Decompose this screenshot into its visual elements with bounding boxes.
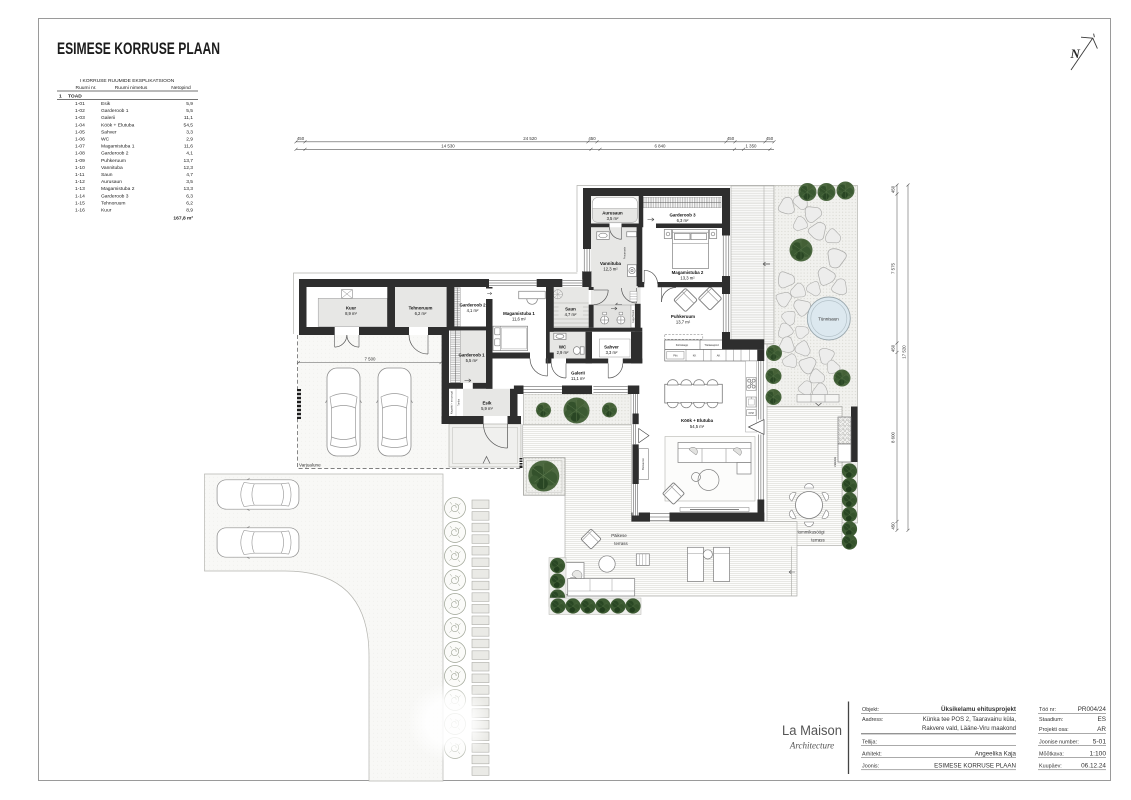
svg-text:La Maison: La Maison [782, 723, 842, 738]
svg-text:13,3: 13,3 [183, 186, 193, 192]
svg-text:24 520: 24 520 [523, 136, 537, 141]
svg-text:5,5 m²: 5,5 m² [466, 358, 478, 363]
svg-text:6,3 m²: 6,3 m² [677, 218, 689, 223]
svg-text:11,6 m²: 11,6 m² [512, 317, 526, 322]
svg-text:11,1 m²: 11,1 m² [571, 376, 585, 381]
svg-text:1-10: 1-10 [75, 165, 85, 171]
svg-text:450: 450 [891, 185, 896, 193]
svg-text:Saun: Saun [565, 307, 576, 312]
svg-text:Magamistuba 2: Magamistuba 2 [672, 270, 704, 275]
svg-text:Köök + Elutuba: Köök + Elutuba [101, 122, 135, 128]
svg-text:54,5 m²: 54,5 m² [690, 424, 705, 429]
svg-text:12,3 m²: 12,3 m² [603, 267, 618, 272]
svg-text:Sahver: Sahver [101, 129, 117, 135]
svg-text:Joonis:: Joonis: [862, 763, 879, 769]
svg-text:450: 450 [588, 136, 596, 141]
svg-text:1-16: 1-16 [75, 208, 85, 214]
svg-text:ESIMESE KORRUSE PLAAN: ESIMESE KORRUSE PLAAN [57, 40, 220, 58]
svg-text:Vannituba: Vannituba [101, 165, 123, 171]
svg-text:1-14: 1-14 [75, 193, 85, 199]
svg-text:1-12: 1-12 [75, 179, 85, 185]
svg-text:4,7: 4,7 [186, 172, 193, 178]
svg-text:3,5 m²: 3,5 m² [607, 216, 619, 221]
svg-text:4,1 m²: 4,1 m² [467, 308, 479, 313]
svg-text:KK: KK [693, 354, 697, 358]
svg-text:Netopind: Netopind [171, 85, 191, 91]
svg-text:Aurusaun: Aurusaun [101, 179, 122, 185]
svg-text:Üksikelamu ehitusprojekt: Üksikelamu ehitusprojekt [941, 706, 1016, 713]
svg-text:1:100: 1:100 [1089, 750, 1106, 757]
svg-text:Töötasapind: Töötasapind [704, 343, 719, 347]
svg-text:1-08: 1-08 [75, 151, 85, 157]
svg-text:1-03: 1-03 [75, 115, 85, 121]
svg-text:ES: ES [1097, 716, 1106, 723]
svg-text:450: 450 [727, 136, 735, 141]
svg-text:terrass: terrass [811, 538, 825, 543]
svg-text:terrass: terrass [614, 541, 628, 546]
svg-text:450: 450 [891, 344, 896, 352]
svg-text:WC: WC [101, 137, 110, 143]
svg-text:Varjualune: Varjualune [299, 463, 321, 468]
svg-text:14 530: 14 530 [441, 144, 455, 149]
svg-text:1-05: 1-05 [75, 129, 85, 135]
svg-text:Magamistuba 2: Magamistuba 2 [101, 186, 135, 192]
svg-text:Pesumasin: Pesumasin [624, 246, 627, 259]
svg-text:06.12.24: 06.12.24 [1081, 762, 1106, 769]
svg-text:Magamistuba 1: Magamistuba 1 [503, 311, 535, 316]
svg-text:Väliköök: Väliköök [833, 456, 837, 467]
svg-text:Architecture: Architecture [789, 741, 834, 751]
svg-text:13,7: 13,7 [183, 158, 193, 164]
svg-text:450: 450 [766, 136, 774, 141]
svg-text:Töö nr:: Töö nr: [1039, 707, 1056, 713]
svg-text:Rakvere vald, Lääne-Viru maako: Rakvere vald, Lääne-Viru maakond [922, 726, 1016, 732]
svg-text:Vannituba: Vannituba [600, 261, 622, 266]
svg-text:Kuupäev:: Kuupäev: [1039, 763, 1062, 769]
svg-text:Tellija:: Tellija: [862, 739, 877, 745]
svg-text:Angeelika Kaja: Angeelika Kaja [975, 750, 1017, 757]
svg-text:Pliit: Pliit [673, 354, 677, 358]
svg-text:Kuur: Kuur [346, 306, 357, 311]
svg-text:Saun: Saun [101, 172, 113, 178]
svg-text:3,3: 3,3 [186, 129, 193, 135]
svg-text:PR004/24: PR004/24 [1078, 706, 1107, 713]
svg-text:167,8 m²: 167,8 m² [173, 216, 193, 222]
svg-text:Garderoob 2: Garderoob 2 [101, 151, 129, 157]
svg-text:Biokamin: Biokamin [641, 458, 645, 470]
svg-text:3,5: 3,5 [186, 179, 193, 185]
svg-text:5-01: 5-01 [1093, 738, 1107, 745]
svg-text:Projekti osa:: Projekti osa: [1039, 727, 1069, 733]
svg-text:5,9 m²: 5,9 m² [481, 406, 493, 411]
svg-text:Tünnisaun: Tünnisaun [818, 317, 839, 322]
svg-text:13,3 m²: 13,3 m² [680, 276, 695, 281]
svg-text:Galerii: Galerii [101, 115, 115, 121]
svg-text:KPM: KPM [749, 412, 754, 415]
svg-text:54,5: 54,5 [183, 122, 193, 128]
svg-text:1: 1 [59, 94, 62, 100]
svg-text:Galerii: Galerii [571, 371, 585, 376]
svg-text:1-02: 1-02 [75, 108, 85, 114]
svg-text:6,2 m²: 6,2 m² [415, 311, 427, 316]
svg-text:WC: WC [559, 345, 567, 350]
svg-text:6,2: 6,2 [186, 200, 193, 206]
svg-text:2,9: 2,9 [186, 137, 193, 143]
svg-text:N: N [1070, 46, 1081, 61]
svg-text:AK: AK [717, 354, 721, 358]
svg-text:Garderoob 1: Garderoob 1 [101, 108, 129, 114]
svg-text:Objekt:: Objekt: [862, 707, 879, 713]
svg-text:Hommikusöögi: Hommikusöögi [795, 530, 824, 535]
svg-text:1-09: 1-09 [75, 158, 85, 164]
svg-text:Magamistuba 1: Magamistuba 1 [101, 144, 135, 150]
svg-text:Garderoob 1: Garderoob 1 [458, 353, 485, 358]
svg-text:Tehnoruum: Tehnoruum [101, 200, 125, 206]
svg-text:6 840: 6 840 [655, 144, 667, 149]
svg-text:8,9: 8,9 [186, 208, 193, 214]
svg-text:8,9 m²: 8,9 m² [345, 311, 357, 316]
svg-text:7 500: 7 500 [365, 357, 377, 362]
svg-text:6,3: 6,3 [186, 193, 193, 199]
svg-text:Aurusaun: Aurusaun [602, 211, 623, 216]
svg-text:AR: AR [1097, 726, 1106, 733]
svg-text:Köök + Elutuba: Köök + Elutuba [681, 418, 714, 423]
svg-text:1-13: 1-13 [75, 186, 85, 192]
svg-text:Tumba: Tumba [459, 398, 461, 406]
svg-text:Puhkeruum: Puhkeruum [671, 314, 695, 319]
svg-text:Esik: Esik [482, 401, 492, 406]
svg-text:1-07: 1-07 [75, 144, 85, 150]
svg-text:1-15: 1-15 [75, 200, 85, 206]
svg-text:TOAD: TOAD [68, 94, 82, 100]
svg-text:Ruumi nr.: Ruumi nr. [76, 85, 97, 91]
svg-text:I KORRUSE RUUMIDE EKSPLIKATSIO: I KORRUSE RUUMIDE EKSPLIKATSIOON [80, 78, 175, 84]
svg-text:11,6: 11,6 [184, 144, 193, 150]
svg-text:2,9 m²: 2,9 m² [557, 350, 569, 355]
svg-text:ESIMESE KORRUSE PLAAN: ESIMESE KORRUSE PLAAN [934, 762, 1016, 769]
svg-text:Päikese: Päikese [611, 533, 627, 538]
svg-text:Künka tee POS 2, Taaravainu kü: Künka tee POS 2, Taaravainu küla, [923, 717, 1017, 723]
svg-text:450: 450 [891, 522, 896, 530]
svg-text:Garderoob 2: Garderoob 2 [459, 303, 486, 308]
svg-text:Staadium:: Staadium: [1039, 717, 1063, 723]
svg-text:8 600: 8 600 [891, 431, 896, 443]
svg-text:Garderoob 3: Garderoob 3 [101, 193, 129, 199]
svg-text:Külmkapp: Külmkapp [676, 343, 689, 347]
svg-text:Kuur: Kuur [101, 208, 112, 214]
svg-text:1-11: 1-11 [75, 172, 85, 178]
svg-text:Garderoob 3: Garderoob 3 [669, 213, 696, 218]
svg-text:1-06: 1-06 [75, 137, 85, 143]
svg-text:Tehnoruum: Tehnoruum [409, 306, 433, 311]
svg-text:5,9: 5,9 [186, 101, 193, 107]
svg-text:17 520: 17 520 [902, 345, 907, 359]
svg-text:1 350: 1 350 [746, 144, 758, 149]
svg-text:Puhkeruum: Puhkeruum [101, 158, 126, 164]
svg-text:1-04: 1-04 [75, 122, 85, 128]
svg-text:4,1: 4,1 [186, 151, 193, 157]
svg-text:Joonise number:: Joonise number: [1039, 739, 1079, 745]
svg-text:Esik: Esik [101, 101, 111, 107]
svg-text:12,3: 12,3 [183, 165, 193, 171]
svg-text:3,3 m²: 3,3 m² [606, 350, 618, 355]
svg-text:450: 450 [297, 136, 305, 141]
svg-text:Sahver: Sahver [604, 345, 619, 350]
svg-text:Mõõtkava:: Mõõtkava: [1039, 751, 1064, 757]
svg-text:11,1: 11,1 [184, 115, 193, 121]
svg-text:1-01: 1-01 [75, 101, 85, 107]
svg-text:Aadress:: Aadress: [862, 717, 883, 723]
svg-text:13,7 m²: 13,7 m² [676, 320, 691, 325]
svg-text:Kingariiul + ava peegel: Kingariiul + ava peegel [450, 390, 453, 414]
svg-text:4,7 m²: 4,7 m² [565, 312, 577, 317]
svg-text:Arhitekt:: Arhitekt: [862, 751, 882, 757]
svg-text:5,5: 5,5 [186, 108, 193, 114]
svg-text:Ruumi nimetus: Ruumi nimetus [115, 85, 148, 91]
svg-text:7 575: 7 575 [891, 262, 896, 274]
svg-text:Kapp/Riiulid: Kapp/Riiulid [632, 309, 635, 323]
